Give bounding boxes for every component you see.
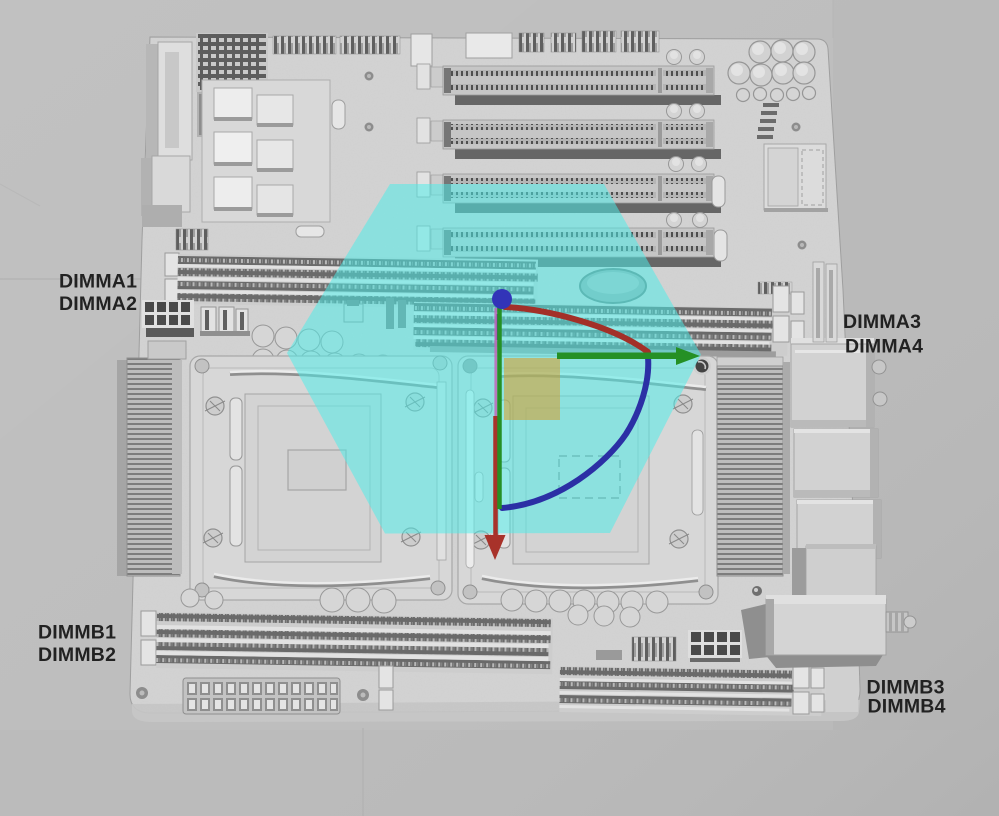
svg-text:DIMMB1: DIMMB1 xyxy=(38,622,116,644)
svg-text:DIMMA1: DIMMA1 xyxy=(59,271,137,293)
svg-text:DIMMB4: DIMMB4 xyxy=(868,696,946,718)
svg-text:DIMMA4: DIMMA4 xyxy=(845,336,923,358)
svg-text:DIMMB2: DIMMB2 xyxy=(38,644,116,666)
svg-text:DIMMA2: DIMMA2 xyxy=(59,293,137,315)
svg-text:DIMMA3: DIMMA3 xyxy=(843,311,921,333)
